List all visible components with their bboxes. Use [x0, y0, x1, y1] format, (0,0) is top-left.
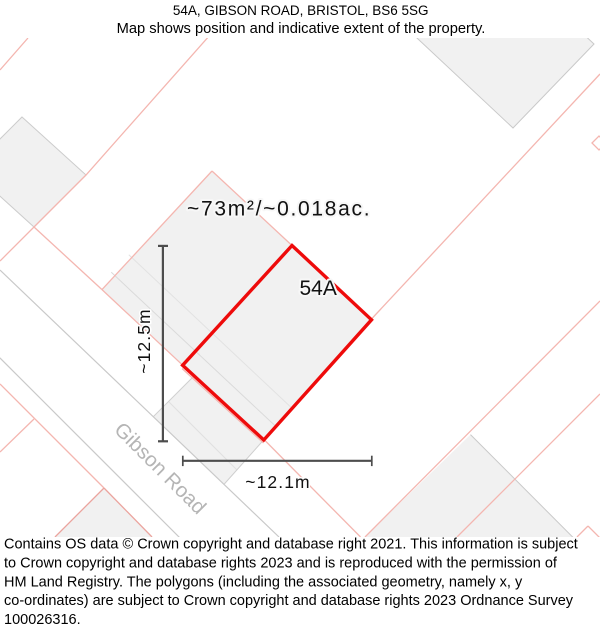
svg-text:co-ordinates) are subject to C: co-ordinates) are subject to Crown copyr…	[4, 593, 574, 609]
svg-text:100026316.: 100026316.	[4, 612, 81, 625]
svg-text:~73m²/~0.018ac.: ~73m²/~0.018ac.	[187, 197, 371, 220]
svg-text:Contains OS data © Crown copyr: Contains OS data © Crown copyright and d…	[4, 537, 578, 553]
svg-text:~12.1m: ~12.1m	[245, 472, 310, 492]
svg-text:~12.5m: ~12.5m	[134, 308, 154, 373]
svg-text:54A, GIBSON ROAD, BRISTOL, BS6: 54A, GIBSON ROAD, BRISTOL, BS6 5SG	[173, 3, 429, 18]
svg-text:54A: 54A	[300, 277, 337, 300]
svg-text:HM Land Registry. The polygons: HM Land Registry. The polygons (includin…	[4, 574, 523, 590]
svg-text:to Crown copyright and databas: to Crown copyright and database rights 2…	[4, 555, 558, 571]
svg-text:Map shows position and indicat: Map shows position and indicative extent…	[117, 21, 486, 37]
